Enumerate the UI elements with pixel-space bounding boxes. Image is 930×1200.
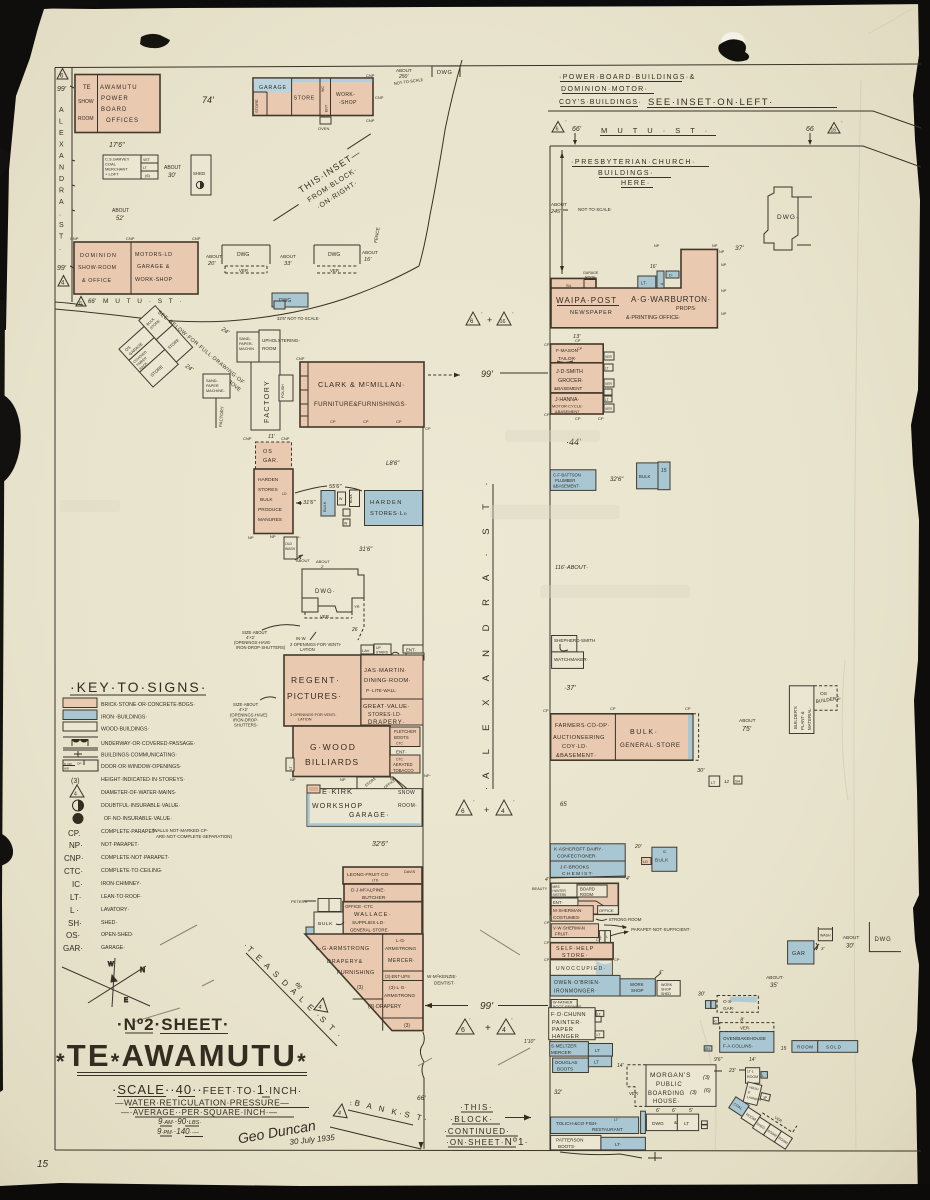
svg-text:(6): (6) — [145, 173, 151, 178]
svg-text:PUBLIC: PUBLIC — [656, 1082, 682, 1088]
svg-text:ABOUT: ABOUT — [396, 68, 412, 73]
svg-text:CNP: CNP — [70, 236, 79, 241]
svg-text:NP: NP — [654, 244, 660, 248]
svg-text:66': 66' — [572, 126, 582, 133]
svg-text:M U T U · S T ·: M U T U · S T · — [103, 298, 184, 305]
svg-text:DWG: DWG — [328, 252, 340, 258]
svg-text:DWG: DWG — [652, 1121, 664, 1127]
svg-text:CNP: CNP — [366, 118, 375, 123]
svg-text:DOUBTFUL·INSURABLE·VALUE·: DOUBTFUL·INSURABLE·VALUE· — [101, 803, 180, 809]
svg-text:STAIRS: STAIRS — [376, 651, 389, 655]
svg-text:CP.: CP. — [68, 829, 80, 838]
svg-text:OFFICE··CTC: OFFICE··CTC — [345, 904, 373, 909]
svg-text:GARAGE: GARAGE — [583, 271, 599, 275]
svg-text:COMPLETE·NOT·PARAPET·: COMPLETE·NOT·PARAPET· — [101, 855, 170, 861]
svg-text:VER: VER — [605, 407, 613, 411]
svg-text:32'6" NOT·TO·SCALE·: 32'6" NOT·TO·SCALE· — [277, 316, 320, 321]
svg-text:STORE: STORE — [294, 96, 315, 102]
svg-text:VER: VER — [605, 355, 613, 359]
svg-text:4: 4 — [74, 792, 77, 798]
svg-text:OVEN/BAKEHOUSE: OVEN/BAKEHOUSE — [723, 1036, 766, 1041]
svg-text:WORK: WORK — [661, 983, 673, 987]
svg-text:(3)·ENT·UPS: (3)·ENT·UPS — [385, 974, 410, 979]
svg-text:ROOM·: ROOM· — [580, 892, 594, 897]
svg-text:4: 4 — [502, 1027, 506, 1034]
svg-text:L·G·: L·G· — [396, 938, 406, 944]
svg-text:CP: CP — [596, 938, 602, 942]
svg-text:CP·: CP· — [614, 958, 621, 962]
svg-text:PAPER: PAPER — [206, 384, 219, 388]
svg-text:LT: LT — [605, 367, 609, 371]
svg-text:SHOP: SHOP — [631, 988, 644, 993]
svg-text:OF·NO·INSURABLE·VALUE·: OF·NO·INSURABLE·VALUE· — [104, 816, 172, 822]
svg-text:VER: VER — [330, 268, 339, 273]
svg-text:PAPER-: PAPER- — [239, 342, 254, 346]
svg-text:CP: CP — [610, 706, 616, 711]
svg-text:STORES·LD: STORES·LD — [370, 511, 407, 517]
svg-text:VER·: VER· — [740, 1026, 751, 1031]
svg-text:HARDEN: HARDEN — [370, 500, 403, 506]
svg-text:(3)·DRAPERY: (3)·DRAPERY — [368, 1004, 402, 1010]
svg-text:M·SHERMAN·: M·SHERMAN· — [553, 908, 583, 913]
svg-text:WATCHMAKER·: WATCHMAKER· — [554, 657, 588, 662]
svg-text:9'6": 9'6" — [714, 1057, 723, 1063]
svg-text:STORE: STORE — [254, 99, 259, 113]
svg-text:VET: VET — [143, 158, 151, 162]
svg-text:J·HANNA·: J·HANNA· — [555, 397, 579, 403]
svg-text:SHED: SHED — [661, 992, 671, 996]
svg-text:ABOUT: ABOUT — [164, 165, 181, 171]
svg-text:O·S·: O·S· — [723, 999, 733, 1004]
svg-text:GARAGE: GARAGE — [259, 85, 287, 91]
svg-text:CNP·: CNP· — [64, 854, 84, 863]
svg-text:BULK: BULK — [322, 501, 327, 512]
svg-text:·KEY·TO·SIGNS·: ·KEY·TO·SIGNS· — [70, 679, 207, 695]
svg-text:OS: OS — [820, 691, 827, 697]
svg-text:IC: IC — [714, 1020, 718, 1024]
svg-text:TOLICH·&CO·FISH·: TOLICH·&CO·FISH· — [556, 1121, 598, 1126]
svg-text:AWAMUTU: AWAMUTU — [100, 85, 138, 91]
svg-text:STRONG·ROOM·: STRONG·ROOM· — [609, 917, 643, 922]
svg-text:HERE·: HERE· — [621, 180, 651, 187]
svg-text:ENT·: ENT· — [406, 648, 416, 653]
svg-text:99': 99' — [57, 265, 67, 272]
svg-text:WASH: WASH — [820, 934, 831, 938]
svg-text:66': 66' — [88, 299, 97, 305]
svg-text:(3)·L·G·: (3)·L·G· — [389, 985, 406, 991]
svg-text:YR: YR — [354, 604, 360, 609]
svg-text:15: 15 — [661, 468, 667, 474]
svg-text:BUILDINGS·: BUILDINGS· — [598, 170, 654, 177]
svg-text:14': 14' — [617, 1063, 625, 1069]
svg-text:CP: CP — [544, 921, 550, 925]
svg-text:6: 6 — [79, 301, 82, 307]
svg-text:BEAUTY: BEAUTY — [532, 887, 548, 891]
svg-text:LATION: LATION — [298, 718, 312, 722]
svg-text:SHUTTERS·: SHUTTERS· — [234, 723, 258, 728]
svg-text:FACTORY: FACTORY — [264, 380, 271, 423]
svg-text:N: N — [140, 967, 145, 974]
svg-text:16: 16 — [500, 319, 506, 325]
svg-text:(6): (6) — [704, 1088, 711, 1094]
svg-text:NEWSPAPER: NEWSPAPER — [570, 310, 613, 316]
svg-text:UP: UP — [376, 646, 381, 650]
svg-text:ABOUT: ABOUT — [739, 718, 756, 724]
svg-text:GARAGE·: GARAGE· — [349, 812, 390, 819]
svg-text:·THIS·: ·THIS· — [460, 1103, 493, 1112]
svg-text:OVEN: OVEN — [318, 126, 329, 131]
svg-text:20': 20' — [634, 844, 643, 850]
svg-text:(3): (3) — [404, 1023, 410, 1029]
svg-text:DWG: DWG — [437, 70, 452, 76]
svg-text:ABOUT: ABOUT — [551, 202, 567, 207]
svg-text:CTC·: CTC· — [64, 867, 83, 876]
svg-text:4: 4 — [501, 808, 505, 815]
svg-text:-SHOP: -SHOP — [339, 100, 357, 106]
svg-text:4'×2': 4'×2' — [239, 707, 248, 712]
svg-text:COY'S·BUILDINGS·: COY'S·BUILDINGS· — [559, 99, 642, 106]
svg-text:99': 99' — [57, 86, 67, 93]
svg-text:W·MCKENZIE·: W·MCKENZIE· — [427, 974, 457, 979]
svg-text:3·OPENINGS·FOR·VENTI-: 3·OPENINGS·FOR·VENTI- — [290, 713, 337, 717]
svg-text:COY·LD·: COY·LD· — [562, 744, 588, 750]
svg-text:PROPS·: PROPS· — [676, 306, 697, 312]
svg-text:WASH: WASH — [285, 547, 296, 551]
svg-text:LT·: LT· — [641, 281, 647, 286]
svg-text:ARMSTRONG: ARMSTRONG — [385, 946, 416, 952]
svg-text:RESTAURANT: RESTAURANT — [592, 1127, 623, 1132]
svg-text:·BLOCK·: ·BLOCK· — [450, 1115, 494, 1124]
svg-text:(3): (3) — [690, 1090, 697, 1096]
svg-text:AUCTIONEERING: AUCTIONEERING — [553, 735, 605, 741]
svg-text:NOT·TO·SCALE·: NOT·TO·SCALE· — [578, 207, 612, 212]
svg-text:6: 6 — [461, 1027, 465, 1034]
svg-text:CP: CP — [575, 338, 581, 343]
svg-text:OS·: OS· — [66, 931, 80, 940]
svg-text:IRONMONGER·: IRONMONGER· — [554, 989, 597, 995]
svg-text:MOTORS-LD: MOTORS-LD — [135, 252, 173, 258]
svg-text:PATTERSON: PATTERSON — [556, 1138, 583, 1143]
svg-text:+: + — [485, 1023, 491, 1034]
svg-text:OS: OS — [263, 449, 273, 455]
svg-text:SEE·INSET·ON·LEFT·: SEE·INSET·ON·LEFT· — [648, 97, 774, 108]
svg-text:SH: SH — [705, 1047, 710, 1051]
svg-text:ABOUT·: ABOUT· — [766, 975, 785, 981]
svg-text:D·: D· — [669, 274, 673, 278]
svg-text:SISTERS: SISTERS — [553, 893, 567, 897]
svg-text:&BASEMENT·: &BASEMENT· — [553, 484, 580, 489]
svg-text:SOLD: SOLD — [826, 1045, 842, 1050]
svg-text:LT: LT — [605, 398, 609, 402]
svg-text:SHED: SHED — [193, 171, 205, 176]
svg-text:BOARD: BOARD — [580, 887, 595, 892]
svg-text:6: 6 — [461, 808, 465, 815]
svg-text:WOOD·BUILDINGS·: WOOD·BUILDINGS· — [101, 727, 149, 733]
svg-text:17'6": 17'6" — [109, 142, 125, 149]
svg-text:BUTCHER·: BUTCHER· — [362, 895, 387, 901]
svg-text:ARMSTRONG: ARMSTRONG — [384, 993, 415, 999]
svg-text:SAND-: SAND- — [206, 379, 219, 383]
svg-text:CNP: CNP — [243, 436, 252, 441]
svg-text:52': 52' — [116, 216, 125, 222]
svg-text:NP: NP — [290, 777, 296, 782]
svg-text:SIL: SIL — [566, 284, 572, 288]
svg-text:(3): (3) — [357, 985, 363, 991]
svg-text:LT: LT — [595, 1048, 600, 1053]
svg-text:CP: CP — [544, 342, 550, 347]
svg-text:—WATER·RETICULATION·PRESSURE—: —WATER·RETICULATION·PRESSURE— — [115, 1098, 289, 1108]
svg-text:·37': ·37' — [564, 685, 576, 692]
svg-text:L: L — [762, 1074, 764, 1078]
svg-text:OLD: OLD — [285, 542, 293, 546]
svg-text:IC: IC — [663, 850, 667, 854]
svg-text:ENT·: ENT· — [553, 900, 563, 905]
svg-text:99': 99' — [480, 1001, 494, 1012]
svg-text:OPEN·SHED·: OPEN·SHED· — [101, 932, 134, 938]
svg-text:·CONTINUED·: ·CONTINUED· — [444, 1127, 510, 1136]
svg-text:GAR: GAR — [792, 951, 805, 957]
svg-text:30': 30' — [697, 768, 705, 774]
svg-text:VER: VER — [629, 1091, 638, 1096]
svg-text:&BASEMENT: &BASEMENT — [555, 409, 580, 414]
svg-text:NP: NP — [248, 535, 254, 540]
svg-text:WC: WC — [321, 86, 325, 92]
svg-text:POWER: POWER — [101, 96, 129, 102]
svg-text:LAVATORY·: LAVATORY· — [101, 907, 129, 913]
svg-text:BULK: BULK — [655, 858, 669, 863]
svg-text:IRON·CHIMNEY·: IRON·CHIMNEY· — [101, 881, 142, 887]
svg-text:LT: LT — [711, 780, 716, 785]
svg-text:SH: SH — [735, 780, 741, 784]
svg-text:LT: LT — [597, 1033, 601, 1037]
svg-text:FLETCHER: FLETCHER — [394, 729, 416, 734]
svg-text:WORKSHOP: WORKSHOP — [312, 803, 363, 810]
svg-text:16: 16 — [831, 128, 837, 134]
svg-text:30': 30' — [698, 992, 706, 998]
svg-text:&: & — [674, 1120, 677, 1125]
svg-text:CP: CP — [363, 419, 369, 424]
svg-text:JAS·MARTIN·: JAS·MARTIN· — [364, 668, 407, 674]
svg-text:SH·: SH· — [68, 919, 82, 928]
svg-text:BILLIARDS: BILLIARDS — [305, 757, 359, 767]
svg-text:11': 11' — [268, 434, 276, 440]
svg-text:DENTIST·: DENTIST· — [434, 981, 455, 986]
svg-text:L: L — [606, 935, 608, 939]
svg-text:COMPLETE·TO·CEILING·: COMPLETE·TO·CEILING· — [101, 868, 163, 874]
svg-text:30': 30' — [846, 944, 855, 950]
svg-text:ABOUT: ABOUT — [206, 254, 222, 259]
svg-text:ABOUT: ABOUT — [362, 250, 378, 255]
svg-text:PARAPET·NOT·SUFFICIENT·: PARAPET·NOT·SUFFICIENT· — [631, 927, 691, 932]
svg-text:65: 65 — [560, 802, 567, 808]
svg-text:ARE·NOT·COMPLETE·SEPARATION): ARE·NOT·COMPLETE·SEPARATION) — [156, 834, 232, 839]
svg-text:NP: NP — [712, 244, 718, 248]
svg-text:G·WOOD: G·WOOD — [310, 742, 356, 752]
svg-text:BRICK·STONE·OR·CONCRETE·BDGS·: BRICK·STONE·OR·CONCRETE·BDGS· — [101, 702, 195, 708]
svg-text:32'6": 32'6" — [372, 841, 388, 848]
svg-text:BULK: BULK — [260, 497, 273, 503]
svg-text:*TE*AWAMUTU*: *TE*AWAMUTU* — [56, 1038, 308, 1074]
svg-text:L ·: L · — [70, 906, 79, 915]
svg-text:IRON·DROP·SHUTTERS): IRON·DROP·SHUTTERS) — [236, 645, 286, 650]
svg-text:LD: LD — [643, 860, 648, 864]
svg-text:DRAPERY&: DRAPERY& — [327, 959, 363, 965]
svg-text:31'6": 31'6" — [359, 547, 373, 553]
svg-text:OFFICES: OFFICES — [106, 118, 139, 124]
svg-text:CP: CP — [544, 412, 550, 417]
svg-text:J·D·SMITH: J·D·SMITH — [556, 369, 583, 375]
svg-text:ROOM: ROOM — [797, 1045, 814, 1050]
svg-text:PLUMBER: PLUMBER — [555, 478, 575, 483]
svg-text:2': 2' — [321, 564, 324, 569]
svg-text:VER: VER — [239, 268, 248, 273]
svg-text:GREAT·VALUE·: GREAT·VALUE· — [363, 704, 410, 710]
svg-text:W: W — [339, 497, 343, 501]
svg-text:LT·: LT· — [70, 893, 81, 902]
svg-text:CP: CP — [544, 958, 550, 962]
svg-text:37': 37' — [735, 245, 744, 252]
svg-text:S·MELTZER: S·MELTZER — [551, 1044, 577, 1049]
svg-text:66': 66' — [417, 1095, 426, 1102]
svg-text:GENERAL·STORE: GENERAL·STORE — [620, 742, 681, 749]
svg-text:BUILDINGS·COMMUNICATING·: BUILDINGS·COMMUNICATING· — [101, 753, 177, 759]
svg-text:ABOUT: ABOUT — [280, 254, 296, 259]
svg-text:WORK-SHOP: WORK-SHOP — [135, 277, 172, 283]
svg-text:BULK: BULK — [639, 474, 651, 479]
svg-text:STORES: STORES — [258, 487, 278, 493]
svg-text:74': 74' — [202, 95, 214, 105]
svg-text:55'6": 55'6" — [329, 484, 342, 490]
svg-text:&·PRINTING·OFFICE·: &·PRINTING·OFFICE· — [626, 315, 681, 321]
svg-text:J·F·BROOKS: J·F·BROOKS — [560, 865, 589, 871]
svg-text:F·D·CHUNN: F·D·CHUNN — [551, 1012, 586, 1018]
svg-text:12: 12 — [724, 779, 730, 784]
svg-text:1'10": 1'10" — [524, 1039, 535, 1045]
svg-text:SAND-: SAND- — [239, 337, 252, 341]
svg-text:CP: CP — [543, 708, 549, 713]
svg-text:HEIGHT·INDICATED·IN·STOREYS·: HEIGHT·INDICATED·IN·STOREYS· — [101, 777, 185, 783]
svg-text:CP: CP — [544, 941, 550, 945]
svg-text:75': 75' — [742, 726, 752, 733]
svg-text:FARMERS·CO-OP·: FARMERS·CO-OP· — [555, 723, 610, 729]
svg-text:REGENT·: REGENT· — [291, 675, 340, 685]
svg-text:FURNITURE&FURNISHINGS·: FURNITURE&FURNISHINGS· — [314, 401, 407, 408]
svg-text:3P: 3P — [763, 1096, 768, 1100]
svg-text:DOOR·OR·WINDOW·OPENINGS·: DOOR·OR·WINDOW·OPENINGS· — [101, 764, 182, 770]
svg-text:(WALLS·NOT·MARKED·CP·: (WALLS·NOT·MARKED·CP· — [152, 828, 208, 833]
svg-text:LATION: LATION — [300, 647, 315, 652]
svg-text:V·W·SHERMAN: V·W·SHERMAN — [553, 926, 585, 931]
svg-text:MOTOR·CYCLE·: MOTOR·CYCLE· — [552, 404, 583, 409]
svg-text:PRODUCE: PRODUCE — [258, 507, 282, 513]
svg-text:&BASEMENT·: &BASEMENT· — [556, 753, 596, 759]
svg-text:LT·: LT· — [614, 1118, 619, 1122]
svg-text:15: 15 — [37, 1159, 49, 1170]
svg-text:BOARD: BOARD — [101, 107, 127, 113]
svg-text:LTD·: LTD· — [372, 879, 379, 883]
svg-text:CP: CP — [685, 706, 691, 711]
svg-text:SELF·HELP: SELF·HELP — [556, 946, 594, 952]
svg-text:26: 26 — [351, 627, 358, 633]
svg-text:—·AVERAGE··PER·SQUARE·INCH·—: —·AVERAGE··PER·SQUARE·INCH·— — [121, 1108, 278, 1117]
svg-text:DOMINION·MOTOR·: DOMINION·MOTOR· — [561, 86, 648, 93]
svg-text:C·F·BATTSON: C·F·BATTSON — [553, 473, 581, 478]
svg-text:23': 23' — [728, 1068, 737, 1074]
svg-text:245': 245' — [550, 209, 562, 215]
svg-text:35': 35' — [770, 983, 779, 989]
svg-text:·PRESBYTERIAN·CHURCH·: ·PRESBYTERIAN·CHURCH· — [571, 159, 696, 166]
svg-text:OFFICE: OFFICE — [599, 908, 614, 913]
svg-text:DOMINION: DOMINION — [80, 253, 117, 259]
svg-text:AERATED: AERATED — [393, 762, 412, 767]
svg-text:MATERIAL·: MATERIAL· — [807, 707, 812, 730]
svg-text:NOT·PARAPET·: NOT·PARAPET· — [101, 842, 140, 848]
svg-text:GAR·: GAR· — [63, 944, 83, 953]
svg-text:·POWER·BOARD·BUILDINGS·&: ·POWER·BOARD·BUILDINGS·& — [559, 74, 696, 81]
svg-text:STORES·LD·: STORES·LD· — [368, 712, 402, 718]
svg-text:SHEPHERD·SMITH: SHEPHERD·SMITH — [554, 638, 595, 643]
svg-text:WORK: WORK — [630, 982, 644, 987]
svg-text:16': 16' — [364, 257, 372, 263]
svg-text:+ LOFT: + LOFT — [105, 172, 119, 177]
svg-text:P··LITE·WALL·: P··LITE·WALL· — [366, 688, 397, 693]
svg-text:·ON·SHEET·Nº1·: ·ON·SHEET·Nº1· — [446, 1137, 529, 1148]
svg-text:ROOM·: ROOM· — [398, 803, 417, 809]
svg-text:VER: VER — [320, 614, 329, 619]
svg-text:CNP: CNP — [366, 73, 375, 78]
svg-text:2·OPENINGS·FOR·VENTI-: 2·OPENINGS·FOR·VENTI- — [290, 642, 342, 647]
svg-text:NP: NP — [721, 263, 727, 267]
svg-text:IN·W: IN·W — [296, 636, 306, 641]
svg-text:6: 6 — [556, 127, 559, 133]
svg-text:UNOCCUPIED·: UNOCCUPIED· — [556, 966, 607, 972]
svg-text:DINING·ROOM·: DINING·ROOM· — [364, 678, 411, 684]
svg-text:SNOW: SNOW — [398, 790, 415, 796]
svg-text:DWG·: DWG· — [777, 214, 799, 221]
svg-text:DWG: DWG — [875, 937, 892, 943]
svg-text:CP: CP — [396, 419, 402, 424]
svg-text:FRUIT·: FRUIT· — [555, 932, 569, 937]
svg-text:FURNISHING: FURNISHING — [337, 970, 375, 976]
svg-text:30': 30' — [168, 173, 177, 179]
svg-text:GARAGE·: GARAGE· — [101, 945, 125, 951]
svg-text:ABOUT: ABOUT — [843, 935, 860, 941]
svg-text:&BASEMENT: &BASEMENT — [554, 386, 583, 391]
svg-text:PLANT·&: PLANT·& — [800, 711, 805, 730]
svg-text:OWEN·O'BRIEN·: OWEN·O'BRIEN· — [554, 980, 601, 986]
svg-text:WAIPA·POST: WAIPA·POST — [556, 296, 617, 305]
svg-text:DWG·: DWG· — [315, 589, 336, 595]
svg-text:ROOM: ROOM — [262, 346, 276, 351]
svg-text:UNDERWAY·OR·COVERED·PASSAGE·: UNDERWAY·OR·COVERED·PASSAGE· — [101, 741, 196, 747]
svg-text:116'·ABOUT·: 116'·ABOUT· — [555, 565, 588, 571]
svg-text:CP: CP — [598, 416, 604, 421]
svg-text:SHOP: SHOP — [661, 988, 672, 992]
svg-text:LT·L: LT·L — [747, 1070, 754, 1074]
svg-text:ABOUT: ABOUT — [112, 208, 129, 214]
svg-text:GENERAL·STORE·: GENERAL·STORE· — [350, 928, 389, 933]
svg-text:MERCER·: MERCER· — [551, 1050, 572, 1055]
svg-text:·A L E X A N D R A · S T ·: ·A L E X A N D R A · S T · — [481, 474, 492, 790]
svg-text:GAR.: GAR. — [263, 458, 279, 464]
svg-text:D·J·MCALPINE·: D·J·MCALPINE· — [351, 888, 386, 894]
svg-text:DWG: DWG — [237, 252, 249, 258]
svg-text:A·G·WARBURTON·: A·G·WARBURTON· — [631, 295, 711, 304]
svg-text:CP: CP — [575, 416, 581, 421]
svg-text:SUPPLIES·LD·: SUPPLIES·LD· — [352, 920, 385, 926]
svg-text:DRAPERY·: DRAPERY· — [368, 720, 405, 726]
svg-text:F·A·COLLINS·: F·A·COLLINS· — [723, 1044, 753, 1049]
